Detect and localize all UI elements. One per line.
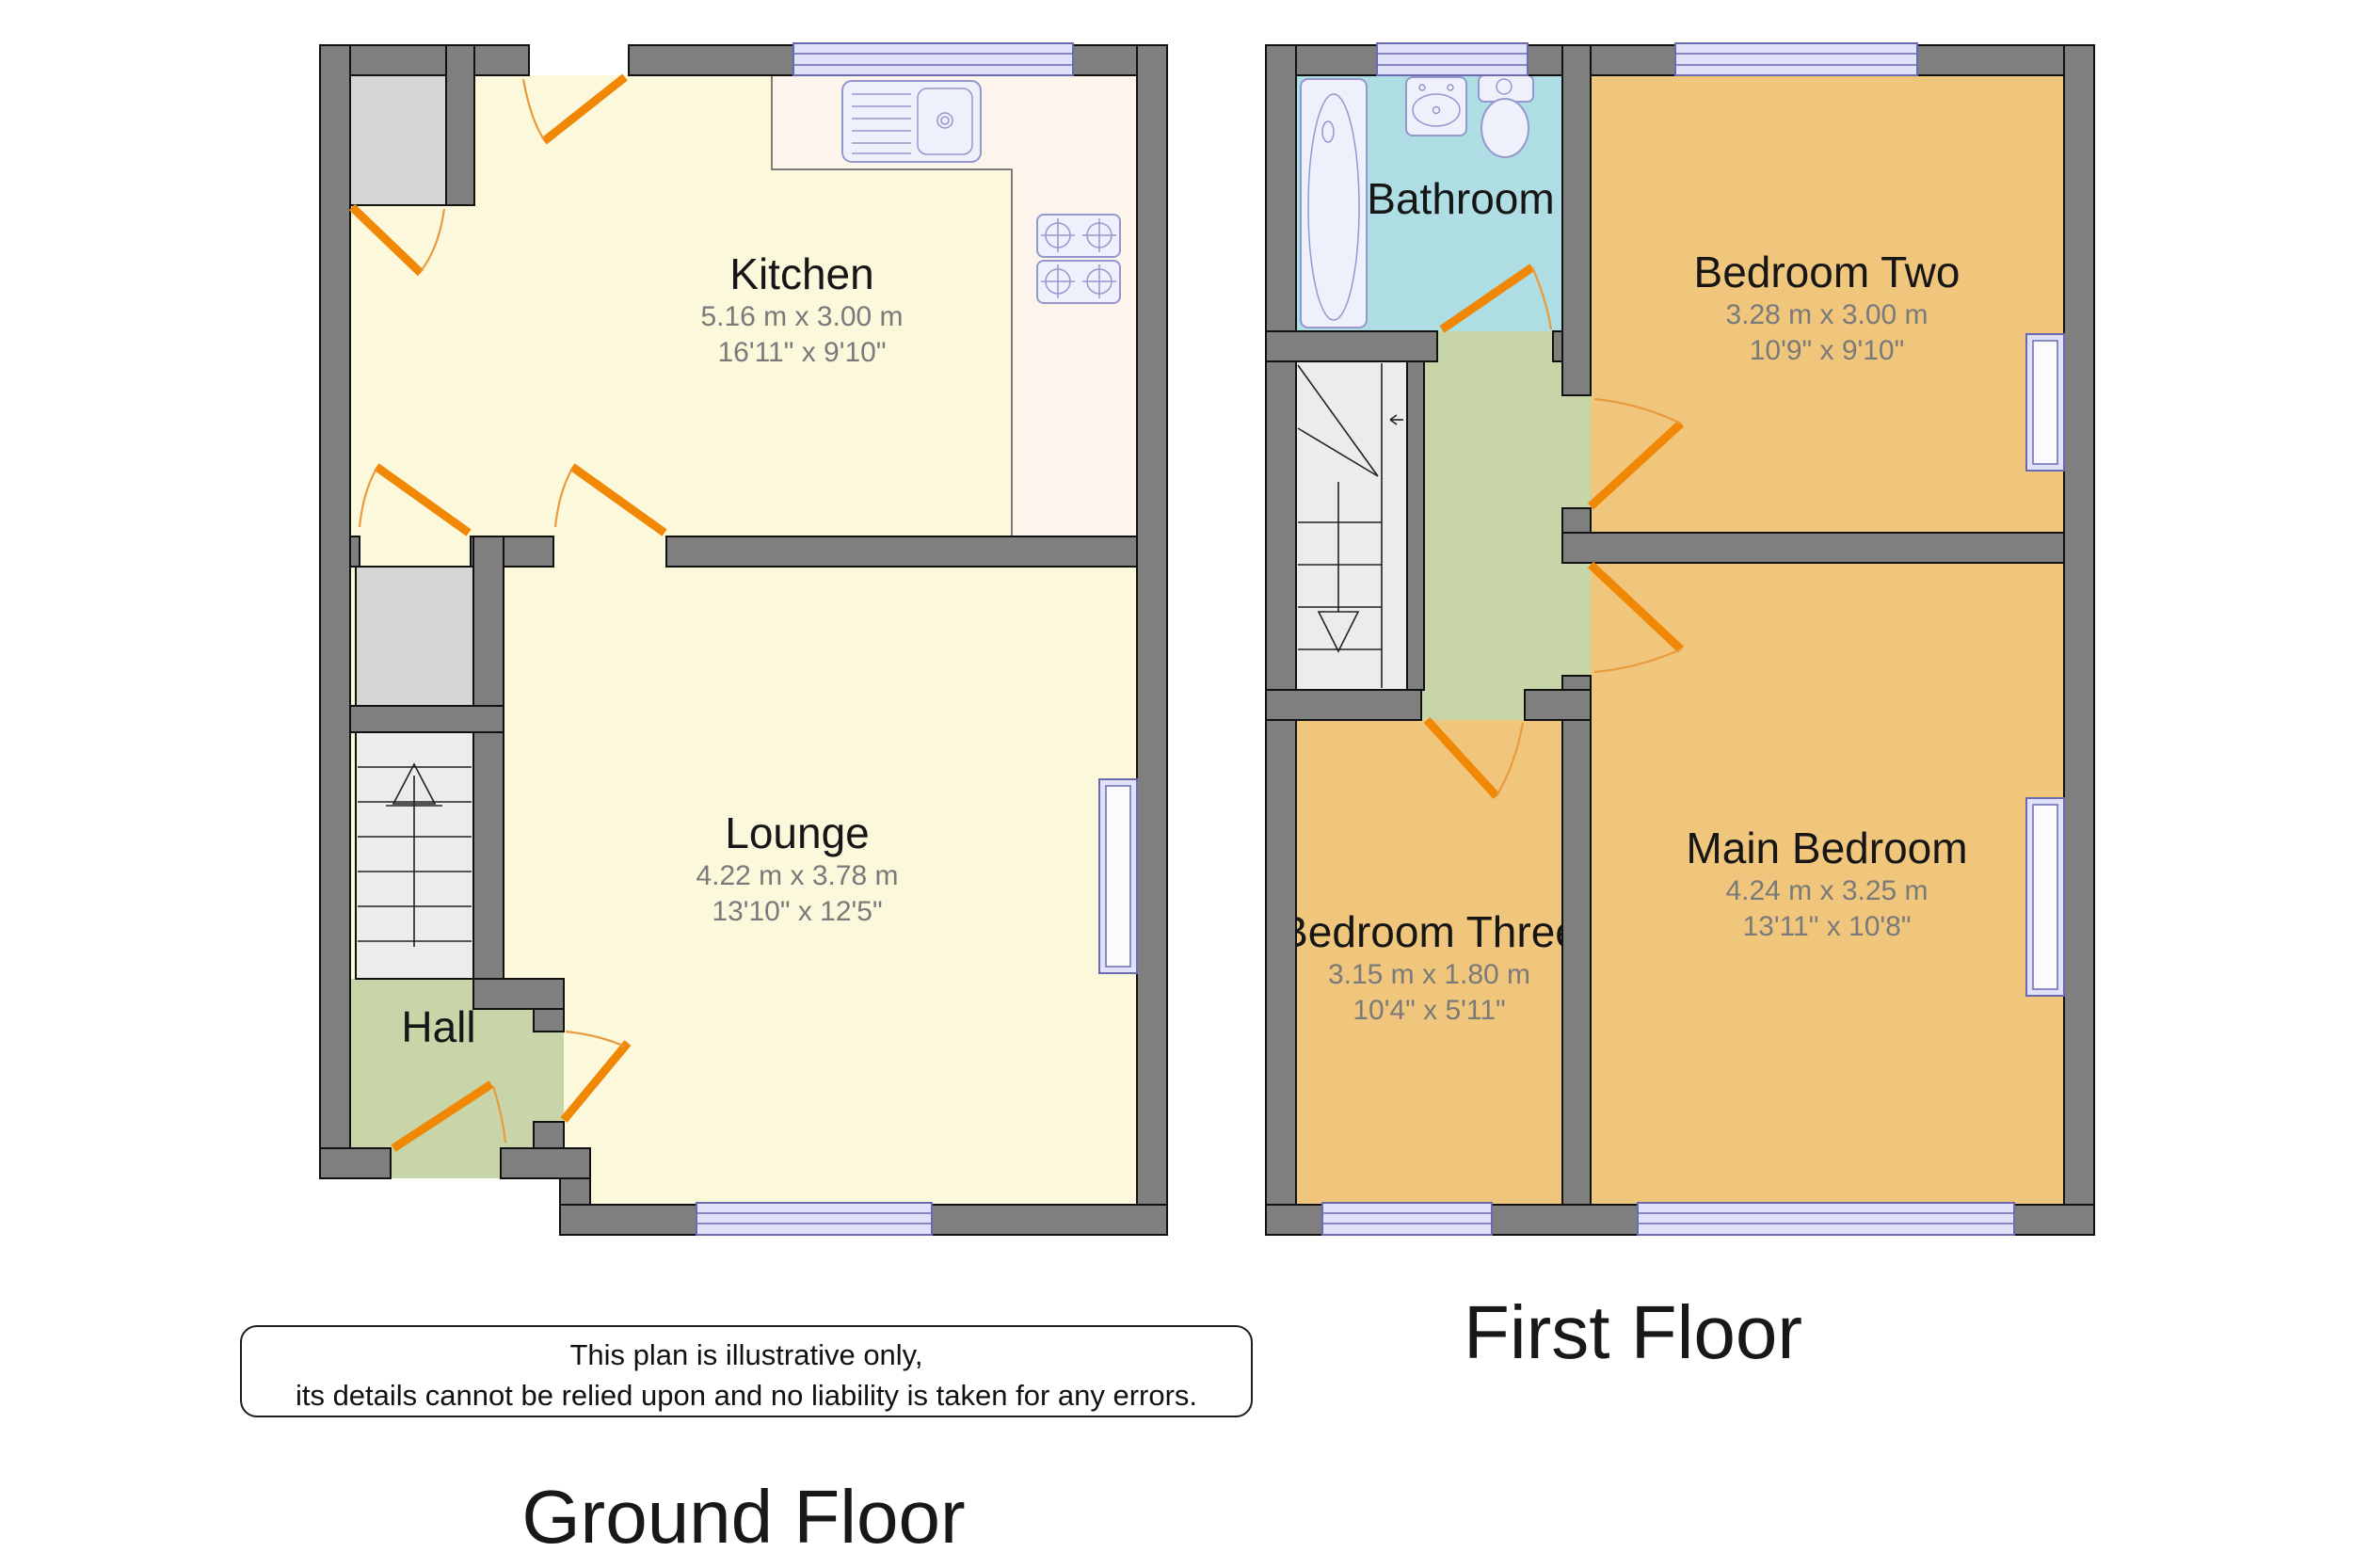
room-label-kitchen: Kitchen 5.16 m x 3.00 m 16'11" x 9'10" [604,250,1000,371]
first-floor-title: First Floor [1304,1289,1962,1376]
main-bedroom-name: Main Bedroom [1629,824,2025,873]
room-label-main-bedroom: Main Bedroom 4.24 m x 3.25 m 13'11" x 10… [1629,824,2025,945]
hall-door-gap [534,1032,564,1122]
main-bedroom-metric: 4.24 m x 3.25 m [1629,873,2025,909]
bedroom-two-imperial: 10'9" x 9'10" [1629,333,2025,369]
landing-floor [1424,361,1562,690]
bathroom-name: Bathroom [1320,175,1602,224]
bedroom-two-door-gap [1562,395,1591,508]
main-bedroom-imperial: 13'11" x 10'8" [1629,909,2025,945]
hall-name: Hall [344,1003,533,1052]
understairs-cupboard [356,567,473,706]
room-label-lounge: Lounge 4.22 m x 3.78 m 13'10" x 12'5" [600,809,995,930]
stairs-down-icon [1296,361,1407,690]
sink-icon [842,81,981,162]
front-door-gap [391,1148,501,1178]
exterior-recess [318,1178,565,1237]
toilet-icon [1479,75,1533,157]
main-bedroom-door-gap [1562,563,1591,676]
closet-top-left [350,75,446,205]
ground-floor-title: Ground Floor [414,1474,1073,1560]
room-label-bedroom-two: Bedroom Two 3.28 m x 3.00 m 10'9" x 9'10… [1629,248,2025,369]
bedroom-three-metric: 3.15 m x 1.80 m [1296,957,1562,993]
lounge-imperial: 13'10" x 12'5" [600,894,995,930]
disclaimer-line2: its details cannot be relied upon and no… [242,1375,1251,1416]
bedroom-three-imperial: 10'4" x 5'11" [1296,993,1562,1029]
ground-floor-plan [318,43,1167,1237]
bedroom-two-metric: 3.28 m x 3.00 m [1629,297,2025,333]
kitchen-name: Kitchen [604,250,1000,299]
disclaimer-line1: This plan is illustrative only, [242,1335,1251,1375]
stairs-up-icon [356,732,473,979]
bedroom-two-name: Bedroom Two [1629,248,2025,297]
kitchen-imperial: 16'11" x 9'10" [604,335,1000,371]
floorplan-canvas: Kitchen 5.16 m x 3.00 m 16'11" x 9'10" L… [0,0,2353,1568]
room-label-hall: Hall [344,1003,533,1052]
room-label-bedroom-three: Bedroom Three 3.15 m x 1.80 m 10'4" x 5'… [1296,908,1562,1029]
bedroom-three-name: Bedroom Three [1296,908,1562,957]
bedroom-three-door-gap [1421,690,1525,720]
bathroom-door-gap [1437,331,1553,361]
bedroom-three-label-clip: Bedroom Three 3.15 m x 1.80 m 10'4" x 5'… [1296,720,1562,1205]
lounge-name: Lounge [600,809,995,858]
room-label-bathroom: Bathroom [1320,175,1602,224]
disclaimer-box: This plan is illustrative only, its deta… [240,1325,1253,1417]
kitchen-metric: 5.16 m x 3.00 m [604,299,1000,335]
basin-icon [1406,77,1466,136]
lounge-metric: 4.22 m x 3.78 m [600,858,995,894]
